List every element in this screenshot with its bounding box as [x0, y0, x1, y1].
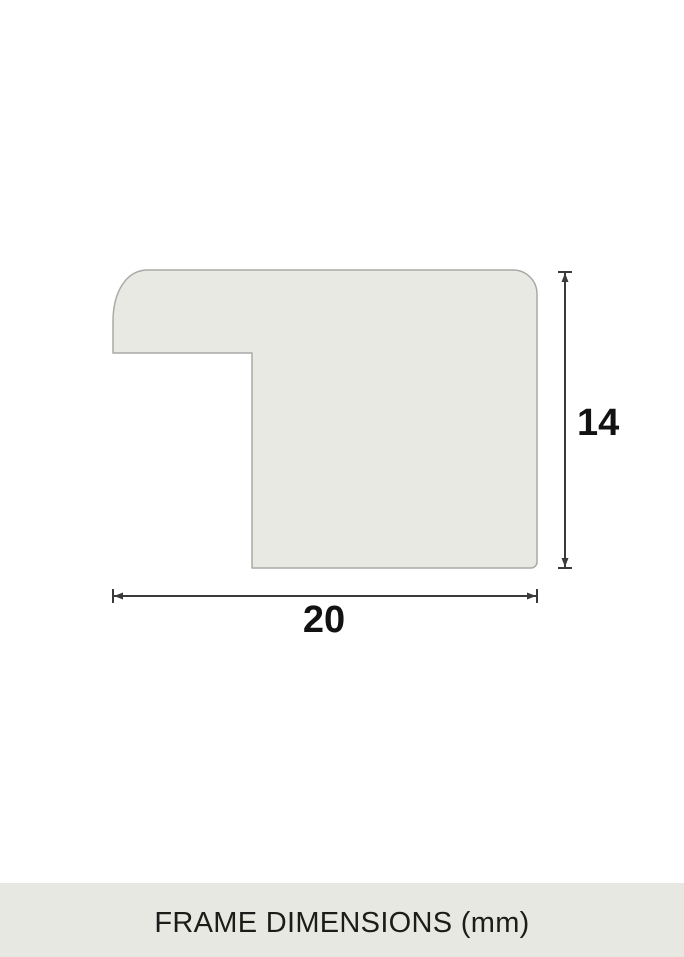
- height-dimension-line: [558, 272, 572, 568]
- height-dimension-up-arrow-icon: [562, 273, 569, 282]
- frame-profile-diagram: [0, 0, 684, 957]
- footer-caption: FRAME DIMENSIONS (mm): [154, 901, 529, 940]
- width-dimension-label: 20: [303, 601, 345, 639]
- footer-caption-bar: FRAME DIMENSIONS (mm): [0, 883, 684, 957]
- frame-profile-page: 14 20 FRAME DIMENSIONS (mm): [0, 0, 684, 957]
- width-dimension-right-arrow-icon: [527, 593, 536, 600]
- frame-profile-shape: [113, 270, 537, 568]
- height-dimension-down-arrow-icon: [562, 558, 569, 567]
- height-dimension-label: 14: [577, 404, 619, 442]
- width-dimension-left-arrow-icon: [114, 593, 123, 600]
